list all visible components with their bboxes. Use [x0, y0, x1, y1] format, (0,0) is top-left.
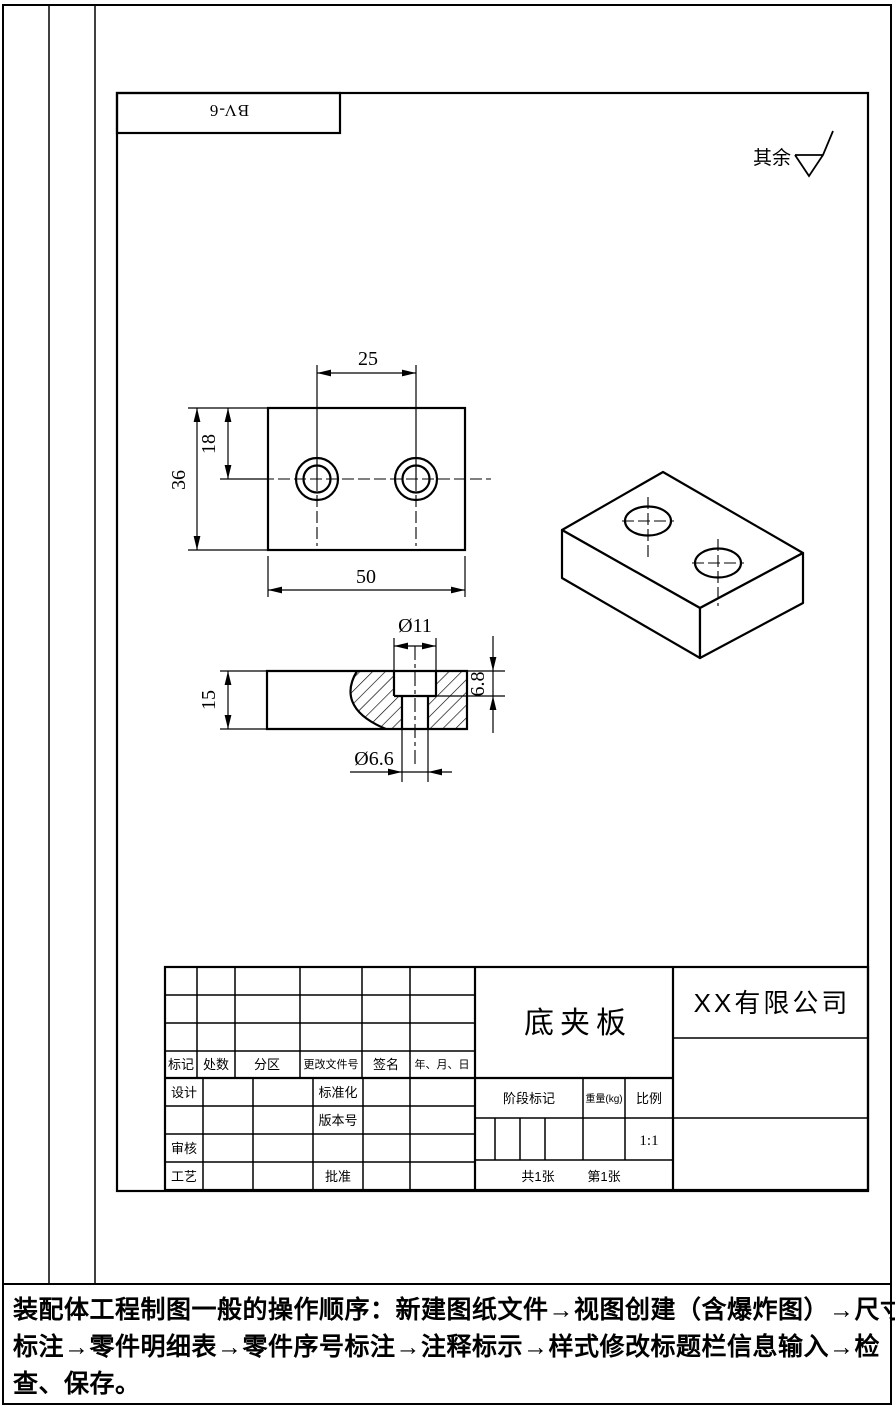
dim-height: 36 [168, 470, 190, 490]
dim-width: 50 [356, 566, 376, 588]
center-lines [246, 479, 491, 546]
label-design: 设计 [171, 1085, 197, 1100]
part-name: 底夹板 [524, 1007, 632, 1040]
label-version: 版本号 [318, 1113, 357, 1128]
front-view: 25 36 18 50 [168, 348, 491, 597]
header-mark: 标记 [168, 1057, 194, 1072]
header-date: 年、月、日 [415, 1057, 470, 1071]
sheet-total: 共1张 [521, 1169, 554, 1184]
scale-value: 1:1 [639, 1133, 658, 1149]
sheet-code-label: BV-6 [209, 101, 249, 120]
header-zone: 分区 [254, 1057, 280, 1072]
instruction-line-1: 装配体工程制图一般的操作顺序：新建图纸文件→视图创建（含爆炸图）→尺寸 [13, 1292, 885, 1329]
label-scale: 比例 [636, 1091, 662, 1106]
surface-finish-note: 其余 [753, 131, 833, 176]
label-audit: 审核 [171, 1141, 197, 1156]
label-standardize: 标准化 [318, 1085, 357, 1100]
instruction-line-2: 标注→零件明细表→零件序号标注→注释标示→样式修改标题栏信息输入→检 [13, 1329, 885, 1366]
isometric-view [562, 472, 803, 658]
label-process: 工艺 [171, 1169, 197, 1184]
instruction-line-3: 查、保存。 [13, 1366, 885, 1403]
label-stage-mark: 阶段标记 [503, 1091, 555, 1106]
dim-counterbore-depth: 6.8 [467, 672, 489, 697]
header-count: 处数 [203, 1057, 229, 1072]
dim-counterbore-dia: Ø11 [398, 615, 432, 637]
engineering-drawing-canvas: BV-6 其余 25 36 [0, 0, 895, 1408]
roughness-symbol-icon [795, 131, 833, 176]
drawing-page: BV-6 其余 25 36 [0, 0, 895, 1408]
header-change-doc: 更改文件号 [304, 1057, 359, 1071]
company-name: XX有限公司 [694, 988, 851, 1018]
dim-thickness: 15 [198, 690, 220, 710]
title-block: 标记 处数 分区 更改文件号 签名 年、月、日 设计 标准化 版本号 审核 工艺… [165, 967, 868, 1190]
label-weight: 重量(kg) [585, 1092, 622, 1105]
section-view: Ø11 6.8 15 Ø6.6 [198, 615, 505, 782]
label-approve: 批准 [325, 1169, 351, 1184]
header-signature: 签名 [373, 1057, 399, 1072]
sheet-code-box: BV-6 [117, 93, 340, 133]
surface-note-text: 其余 [753, 147, 791, 169]
hatch-right [428, 671, 467, 729]
sheet-number: 第1张 [587, 1169, 620, 1184]
dim-hole-dia: Ø6.6 [354, 748, 393, 770]
extension-lines [188, 365, 465, 597]
dim-hole-offset: 18 [198, 434, 220, 454]
instruction-text: 装配体工程制图一般的操作顺序：新建图纸文件→视图创建（含爆炸图）→尺寸 标注→零… [13, 1292, 885, 1403]
dim-hole-spacing: 25 [358, 348, 378, 370]
